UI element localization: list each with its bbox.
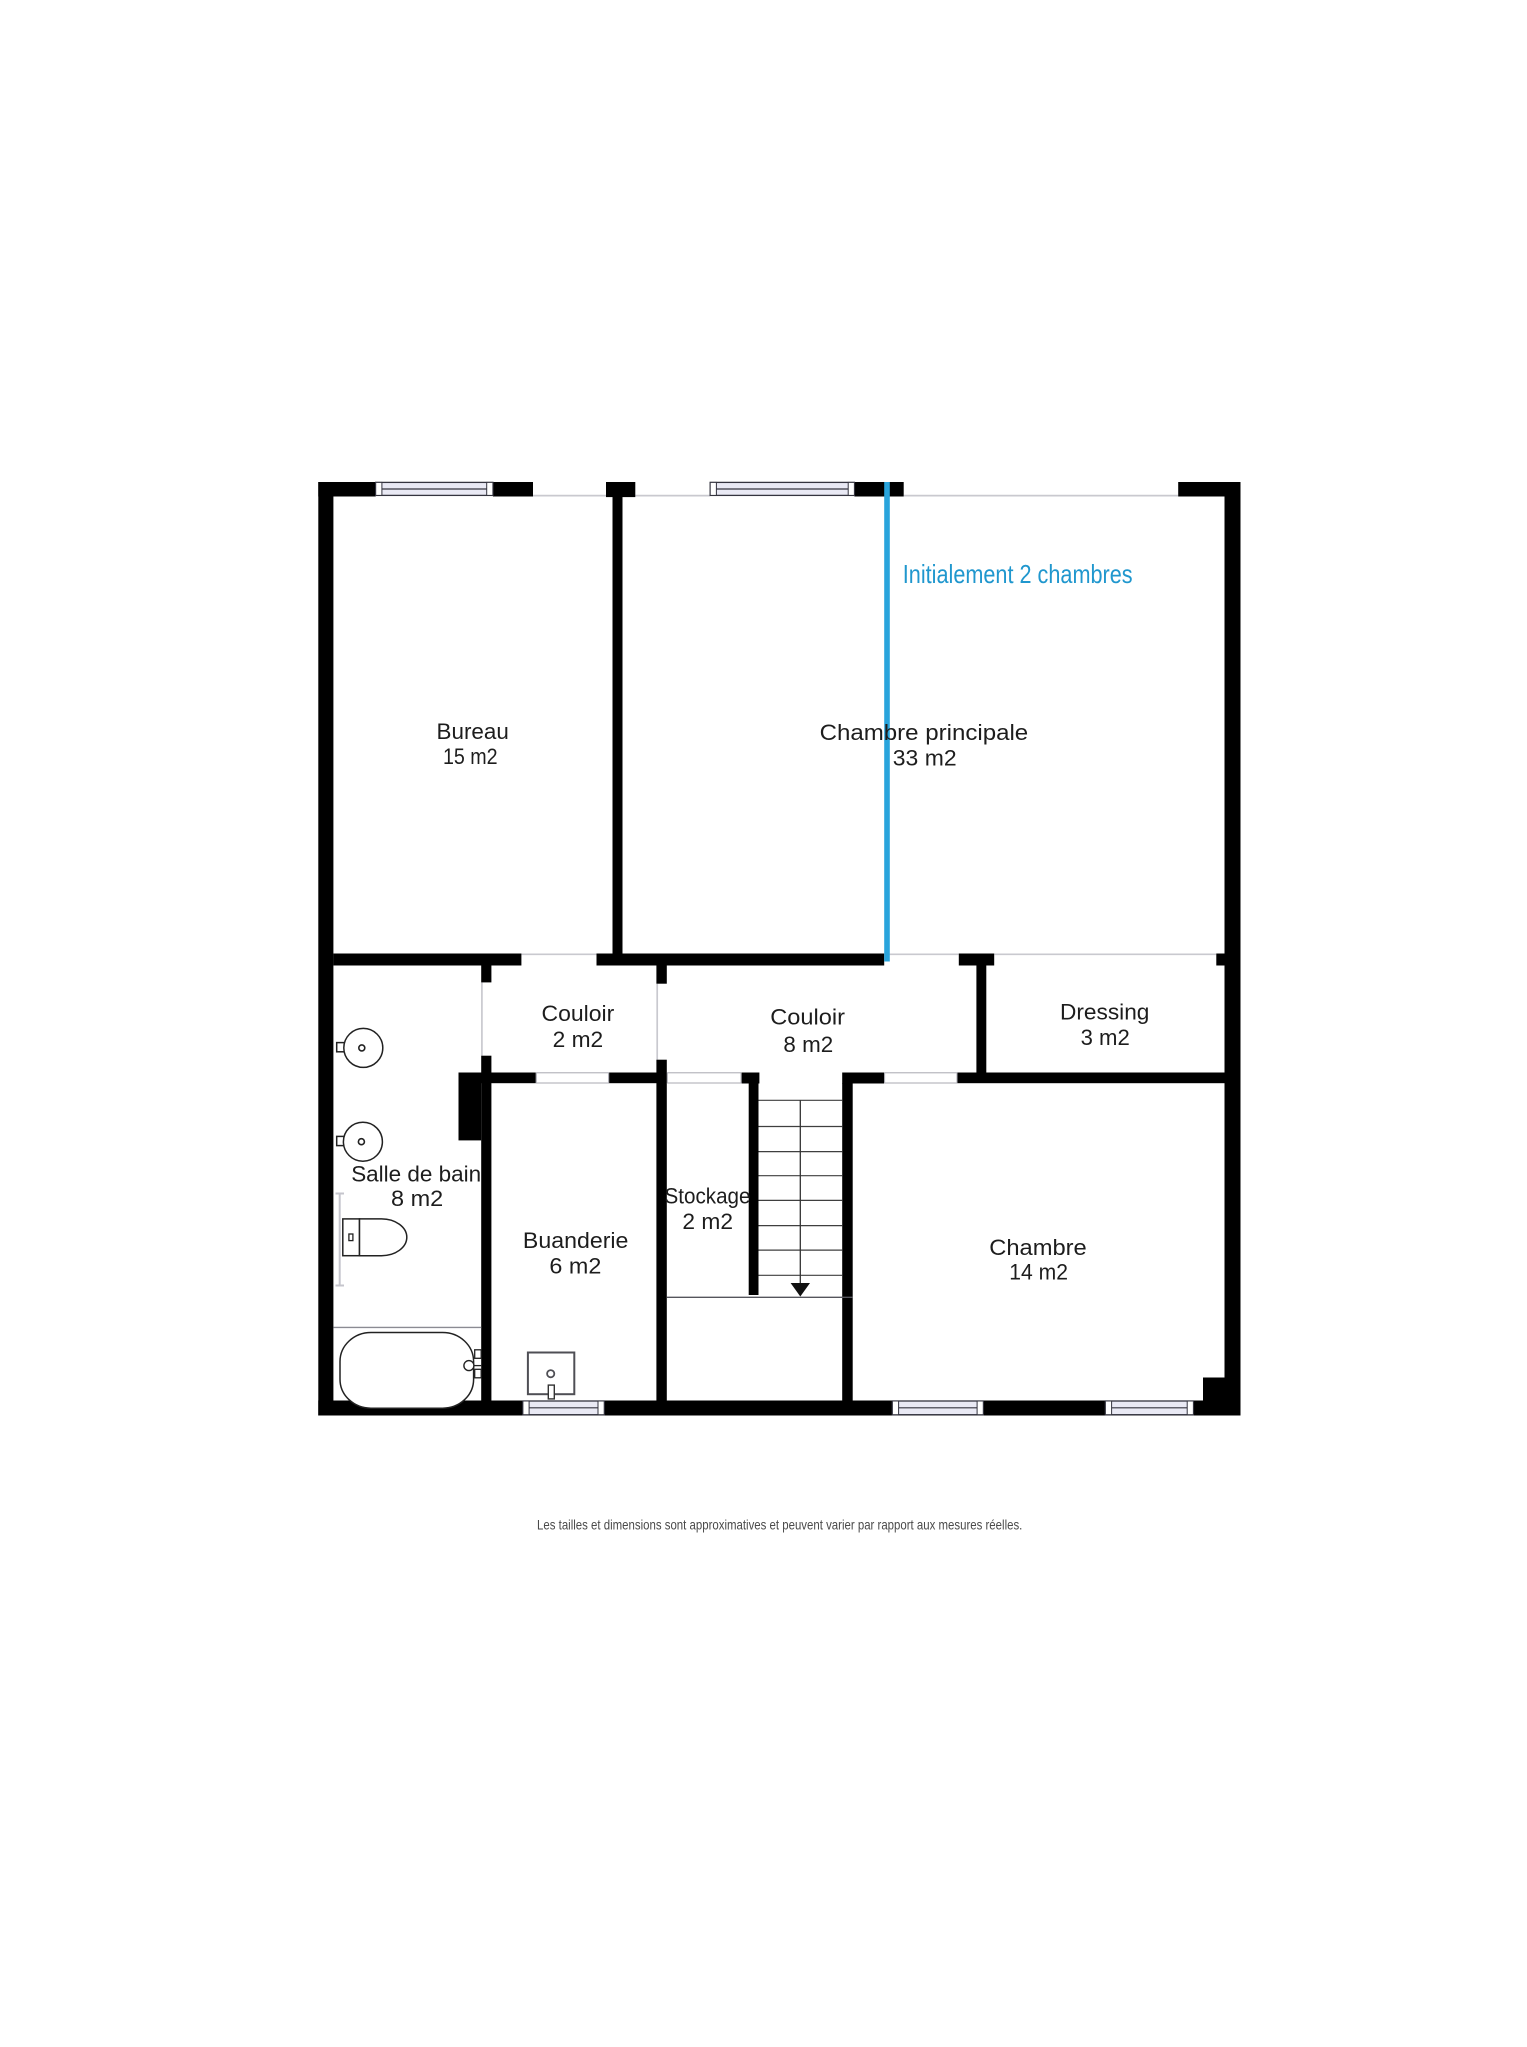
- svg-text:Chambre: Chambre: [989, 1235, 1087, 1260]
- svg-text:Stockage: Stockage: [665, 1183, 751, 1208]
- svg-text:Couloir: Couloir: [770, 1004, 845, 1029]
- svg-text:33 m2: 33 m2: [893, 746, 957, 771]
- svg-text:8 m2: 8 m2: [783, 1032, 833, 1057]
- svg-text:15 m2: 15 m2: [443, 744, 498, 769]
- svg-text:Dressing: Dressing: [1060, 999, 1149, 1024]
- svg-text:Les tailles et dimensions sont: Les tailles et dimensions sont approxima…: [537, 1517, 1022, 1533]
- svg-text:2 m2: 2 m2: [682, 1209, 733, 1234]
- svg-text:Couloir: Couloir: [542, 1001, 615, 1026]
- svg-text:Chambre principale: Chambre principale: [820, 720, 1029, 745]
- svg-text:8 m2: 8 m2: [391, 1186, 443, 1211]
- svg-text:3 m2: 3 m2: [1081, 1025, 1130, 1050]
- svg-text:Initialement 2 chambres: Initialement 2 chambres: [903, 559, 1133, 589]
- svg-text:Buanderie: Buanderie: [523, 1228, 629, 1253]
- svg-text:Bureau: Bureau: [437, 719, 509, 744]
- svg-text:2 m2: 2 m2: [553, 1027, 604, 1052]
- svg-text:Salle de bain: Salle de bain: [351, 1162, 481, 1187]
- svg-text:6 m2: 6 m2: [549, 1253, 601, 1278]
- svg-text:14 m2: 14 m2: [1009, 1260, 1068, 1285]
